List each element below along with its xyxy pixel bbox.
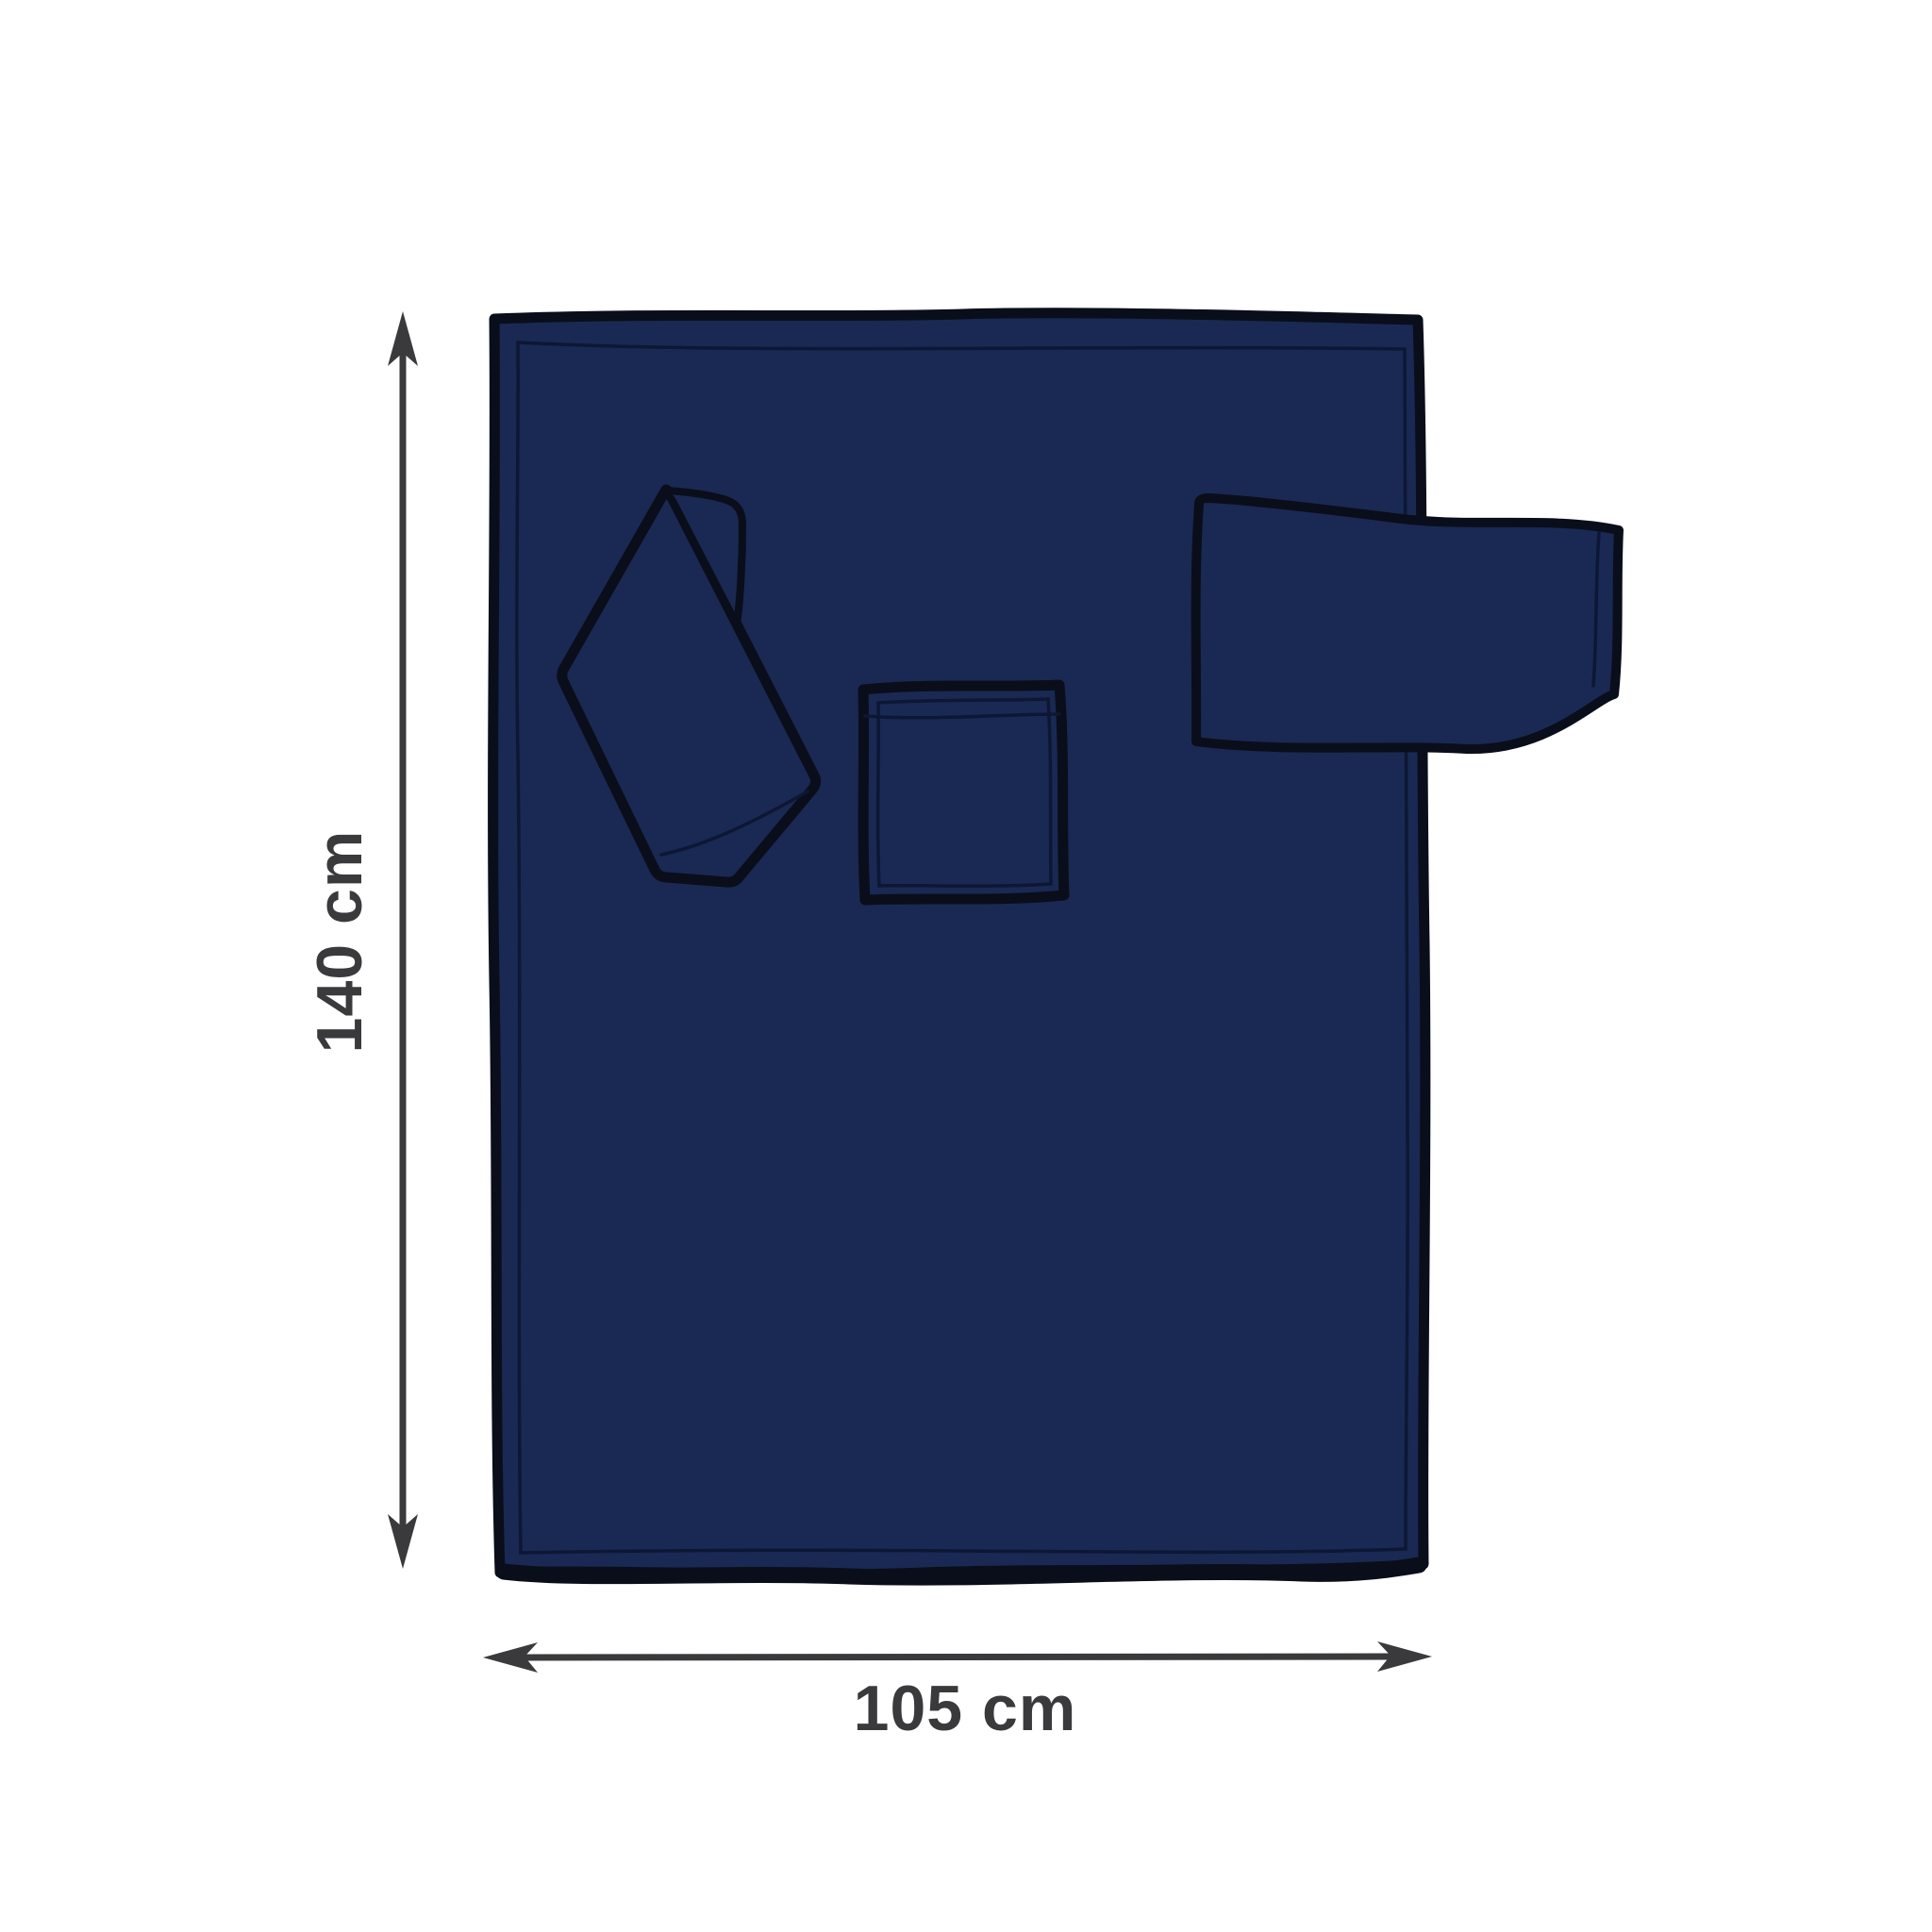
height-dimension-label: 140 cm (304, 830, 375, 1054)
right-sleeve-outline (1196, 498, 1619, 749)
height-dimension: 140 cm (304, 311, 418, 1569)
pocket (863, 685, 1064, 900)
product-dimension-diagram: 140 cm 105 cm (0, 0, 1932, 1932)
width-dimension-label: 105 cm (854, 1673, 1077, 1744)
wearable-blanket-illustration: 140 cm 105 cm (0, 0, 1932, 1932)
width-arrow-shaft (525, 1657, 1393, 1657)
right-sleeve (1196, 498, 1619, 749)
width-dimension: 105 cm (483, 1641, 1432, 1744)
